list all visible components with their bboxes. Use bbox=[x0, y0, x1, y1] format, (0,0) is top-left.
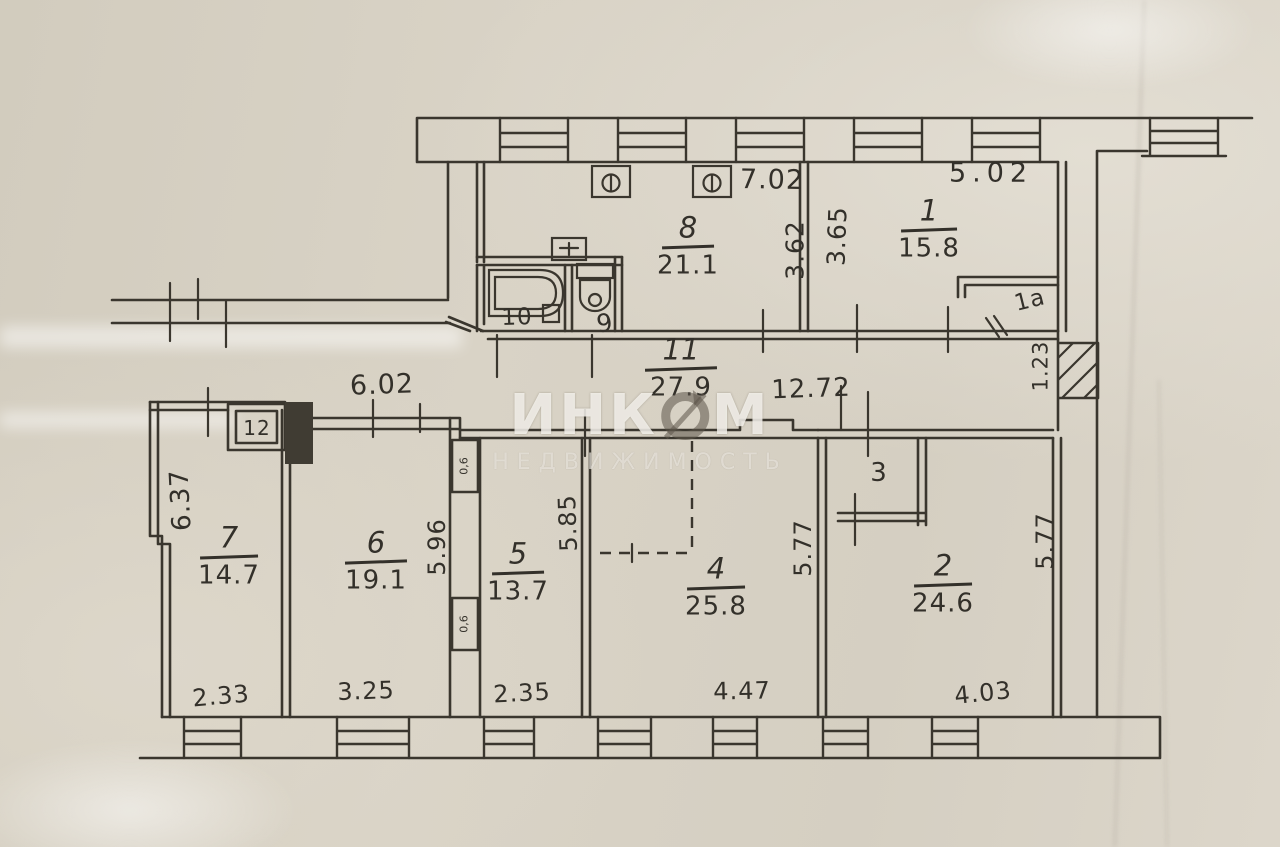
room-4-underline bbox=[687, 585, 745, 590]
dim-room4-width: 4.47 bbox=[713, 679, 771, 704]
room-5-number: 5 bbox=[509, 540, 527, 569]
dim-room4-right: 5.77 bbox=[791, 519, 815, 576]
room-8-area: 21.1 bbox=[657, 253, 719, 279]
room-2-area: 24.6 bbox=[912, 591, 974, 617]
dim-shaft: 1.23 bbox=[1031, 341, 1052, 392]
room-4-number: 4 bbox=[707, 555, 725, 584]
toilet-icon bbox=[577, 264, 613, 311]
pier-fill bbox=[285, 402, 313, 464]
room-8-number: 8 bbox=[679, 214, 697, 243]
room-7-area: 14.7 bbox=[198, 563, 260, 589]
room-1-area: 15.8 bbox=[898, 236, 960, 262]
room-6-label: 6 19.1 bbox=[345, 529, 407, 594]
room-6-number: 6 bbox=[367, 529, 385, 558]
room-11-area: 27.9 bbox=[650, 375, 712, 401]
dim-room6-right: 5.96 bbox=[425, 518, 449, 575]
dim-room5-width: 2.35 bbox=[493, 680, 552, 707]
dim-room7-left: 6.37 bbox=[166, 468, 195, 531]
dim-closet-upper: 0,6 bbox=[459, 457, 470, 475]
dim-hall-left: 6.02 bbox=[349, 370, 414, 399]
stove-icon bbox=[693, 166, 731, 197]
vent-shaft-hatch bbox=[1058, 343, 1098, 398]
room-9-number: 9 bbox=[595, 309, 615, 336]
dim-room2-right: 5.77 bbox=[1033, 512, 1057, 569]
dim-top-kitchen: 7.02 bbox=[740, 166, 805, 194]
room-1-label: 1 15.8 bbox=[898, 197, 960, 262]
dim-room7-width: 2.33 bbox=[191, 682, 250, 711]
room-7-underline bbox=[200, 554, 258, 559]
room-5-area: 13.7 bbox=[487, 579, 549, 605]
room-8-underline bbox=[662, 245, 714, 250]
room-4-area: 25.8 bbox=[685, 594, 747, 620]
dim-kitchen-depth: 3.62 bbox=[783, 220, 808, 280]
room-12-number: 12 bbox=[243, 418, 270, 438]
floorplan-lines bbox=[0, 0, 1280, 847]
dim-room5-right: 5.85 bbox=[555, 494, 581, 552]
room-1-underline bbox=[901, 228, 957, 233]
room-4-label: 4 25.8 bbox=[685, 555, 747, 620]
room-7-number: 7 bbox=[220, 524, 238, 553]
dim-closet-lower: 0,6 bbox=[459, 615, 470, 633]
dim-room2-width: 4.03 bbox=[953, 678, 1013, 708]
room-11-number: 11 bbox=[663, 336, 700, 365]
planned-partition-dashed bbox=[600, 441, 692, 553]
stove-icon bbox=[592, 166, 630, 197]
dim-room6-width: 3.25 bbox=[337, 678, 395, 704]
room-5-label: 5 13.7 bbox=[487, 540, 549, 605]
room-7-label: 7 14.7 bbox=[198, 524, 260, 589]
room-6-underline bbox=[345, 559, 407, 564]
room-11-label: 11 27.9 bbox=[645, 336, 717, 401]
dim-top-room1: 5.02 bbox=[949, 160, 1033, 187]
floorplan-scan: 7.02 5.02 3.62 3.65 6.02 12.72 1.23 6.37… bbox=[0, 0, 1280, 847]
room-5-underline bbox=[492, 571, 544, 576]
room-1-number: 1 bbox=[920, 197, 938, 226]
dim-room1-depth: 3.65 bbox=[823, 206, 850, 267]
room-8-label: 8 21.1 bbox=[657, 214, 719, 279]
room-2-underline bbox=[914, 582, 972, 587]
room-10-number: 10 bbox=[501, 306, 533, 330]
room-6-area: 19.1 bbox=[345, 568, 407, 594]
room-11-underline bbox=[645, 366, 717, 372]
room-3-number: 3 bbox=[870, 460, 888, 486]
dim-hall-right: 12.72 bbox=[771, 375, 851, 404]
room-2-label: 2 24.6 bbox=[912, 552, 974, 617]
room-2-number: 2 bbox=[934, 552, 952, 581]
